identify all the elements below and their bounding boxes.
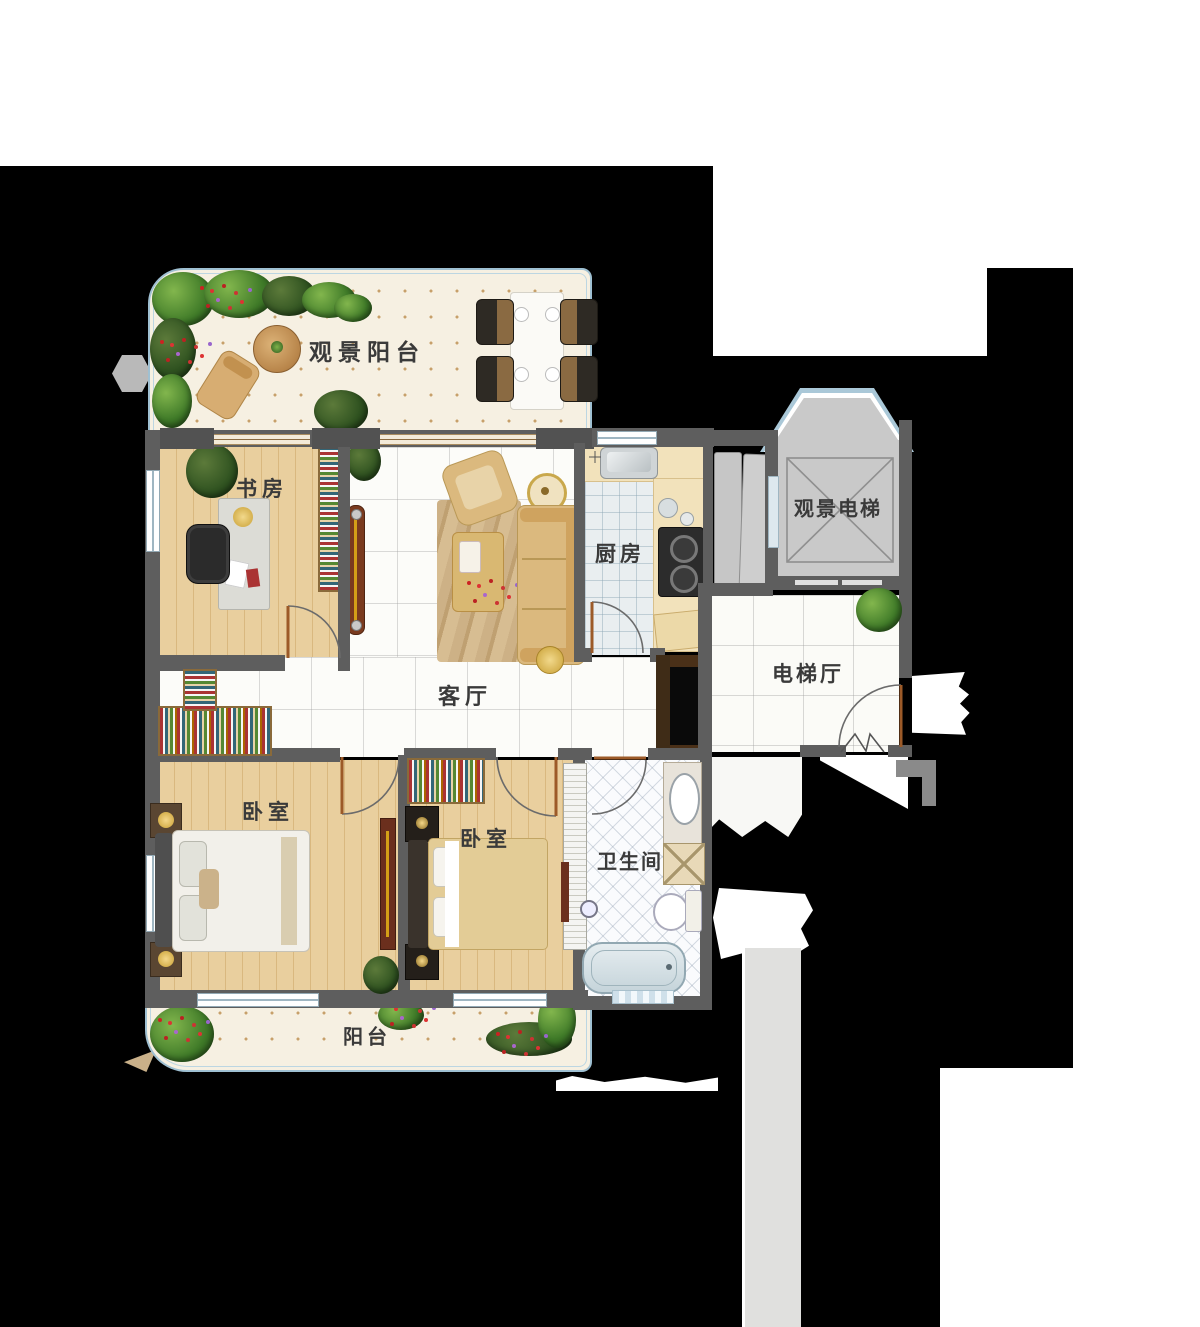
room-label-kitchen: 厨房: [595, 538, 645, 568]
room-label-living: 客厅: [438, 679, 492, 711]
room-label-bathroom: 卫生间: [597, 846, 663, 875]
room-label-bedroom-left: 卧室: [242, 796, 294, 826]
room-label-study: 书房: [236, 473, 288, 503]
room-label-balcony-top: 观景阳台: [309, 333, 425, 367]
floor-plan-canvas: 观景阳台 书房 厨房 观景电梯 电梯厅 客厅 卧室 卧室 卫生间 阳台: [0, 0, 1200, 1327]
door-arcs-layer: [0, 0, 1200, 1327]
room-label-bedroom-right: 卧室: [460, 823, 512, 853]
room-label-balcony-bottom: 阳台: [343, 1021, 391, 1050]
room-label-elevator: 观景电梯: [794, 493, 882, 522]
room-label-elevator-hall: 电梯厅: [772, 658, 844, 688]
